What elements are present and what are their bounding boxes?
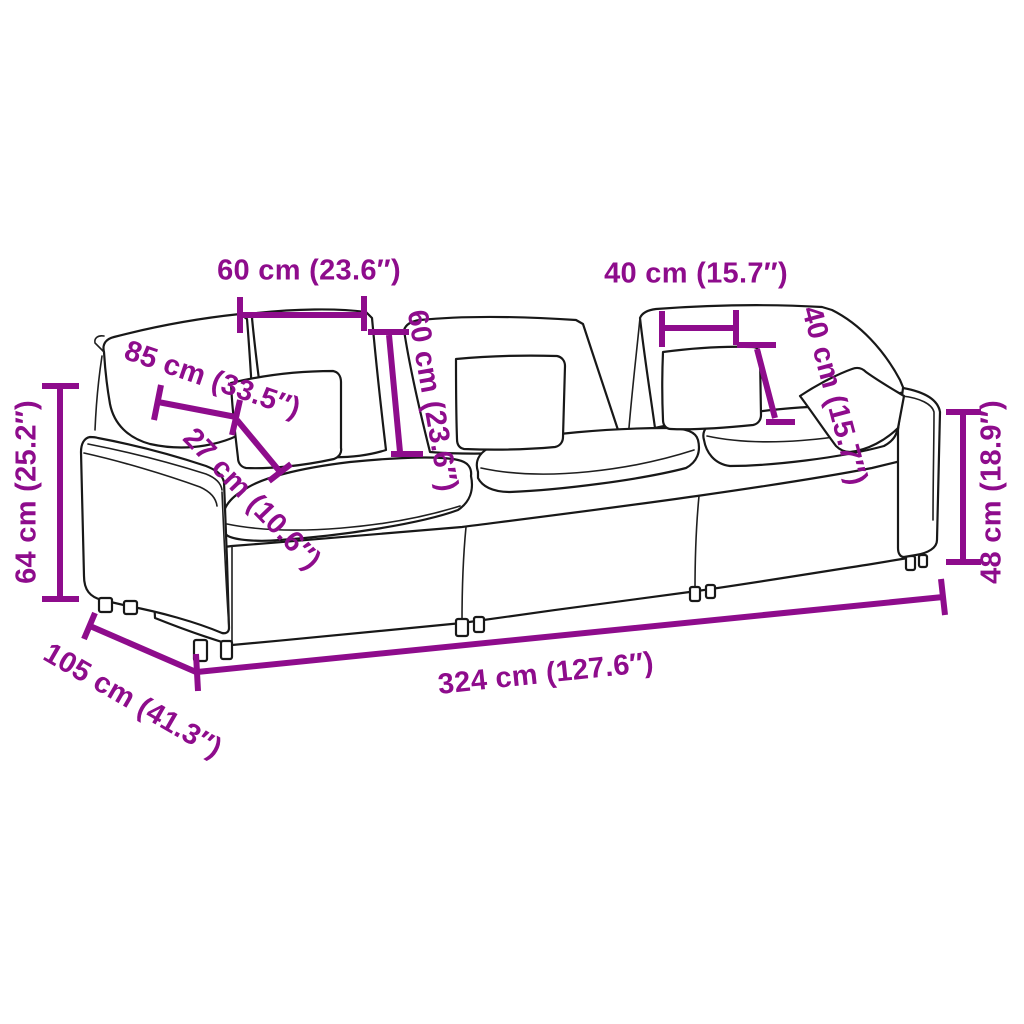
back-cushion-gap-seam <box>622 318 640 444</box>
leg <box>706 585 715 598</box>
dimension-label-back-cushion-width: 60 cm (23.6″) <box>217 255 401 287</box>
product-dimension-diagram: 60 cm (23.6″) 40 cm (15.7″) 60 cm (23.6″… <box>0 0 1024 1024</box>
back-frame-left-edge <box>95 356 102 430</box>
throw-pillow-middle <box>456 356 565 450</box>
back-cushion-1-corner-fold <box>95 336 104 352</box>
leg <box>456 619 468 636</box>
sofa-dimension-svg: 60 cm (23.6″) 40 cm (15.7″) 60 cm (23.6″… <box>0 0 1024 1024</box>
leg <box>690 587 700 601</box>
leg <box>124 601 137 614</box>
dimension-label-arm-height: 48 cm (18.9″) <box>976 400 1008 584</box>
dimension-label-overall-height: 64 cm (25.2″) <box>11 400 43 584</box>
leg <box>99 598 112 612</box>
dimension-label-throw-pillow-width: 40 cm (15.7″) <box>604 258 788 290</box>
dim-overall-height <box>42 386 79 599</box>
leg <box>221 641 232 659</box>
throw-pillow-right <box>662 347 761 430</box>
dimension-label-overall-width: 324 cm (127.6″) <box>436 646 655 700</box>
leg <box>919 555 927 567</box>
leg <box>906 556 915 570</box>
leg <box>474 617 484 632</box>
